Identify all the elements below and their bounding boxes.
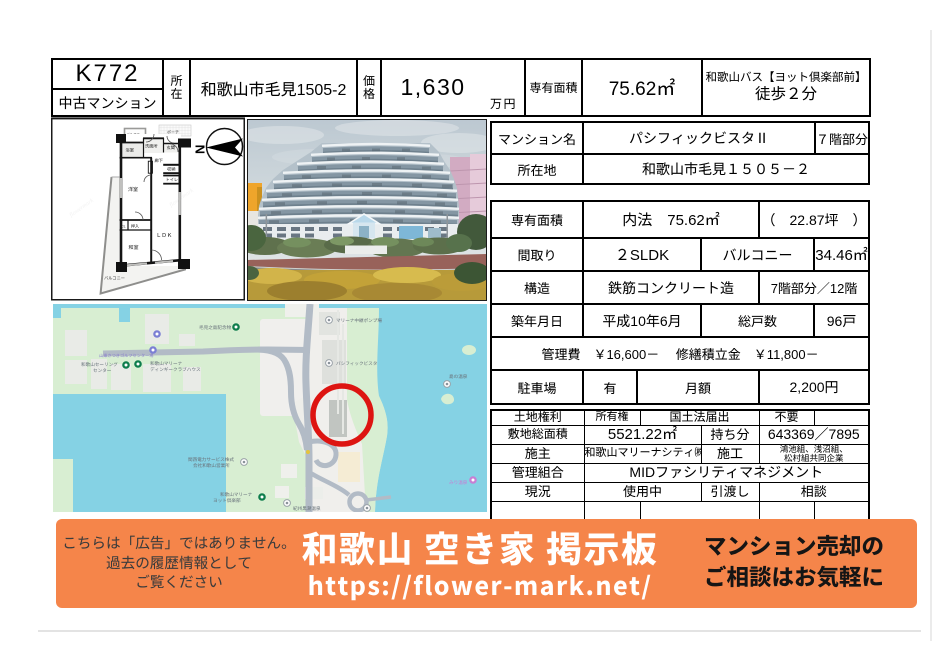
svg-text:マリーナ中継ポンプ場: マリーナ中継ポンプ場 — [336, 318, 382, 323]
svg-text:CL: CL — [121, 225, 126, 229]
svg-text:関西電力サービス株式: 関西電力サービス株式 — [188, 457, 234, 462]
svg-text:毛見之島記念物: 毛見之島記念物 — [199, 325, 232, 330]
svg-text:会社和歌山営業所: 会社和歌山営業所 — [193, 463, 230, 468]
svg-text:バルコニー: バルコニー — [104, 276, 125, 281]
svg-text:収納: 収納 — [167, 167, 175, 172]
svg-text:押入: 押入 — [131, 224, 139, 229]
svg-text:N: N — [193, 145, 208, 154]
svg-text:ＬＤＫ: ＬＤＫ — [156, 233, 172, 239]
svg-text:ヨット倶楽部: ヨット倶楽部 — [213, 498, 241, 503]
svg-text:和室: 和室 — [129, 244, 139, 251]
svg-text:和歌山マリーナ: 和歌山マリーナ — [150, 361, 183, 366]
svg-text:浴室: 浴室 — [126, 148, 134, 153]
svg-text:山東さつきゴルフセンター場: 山東さつきゴルフセンター場 — [99, 353, 154, 358]
svg-text:ポーチ: ポーチ — [167, 130, 179, 135]
svg-text:洋室: 洋室 — [128, 186, 138, 193]
svg-text:玄関: 玄関 — [167, 145, 175, 150]
svg-text:島の温泉: 島の温泉 — [449, 374, 468, 379]
svg-text:洗面所: 洗面所 — [145, 144, 158, 149]
svg-text:パシフィックビスタ: パシフィックビスタ — [336, 361, 378, 366]
svg-text:和歌山セーリング: 和歌山セーリング — [81, 362, 118, 367]
svg-text:みり温泉: みり温泉 — [449, 480, 468, 485]
svg-text:トイレ: トイレ — [166, 177, 179, 182]
svg-text:センター: センター — [93, 368, 112, 373]
svg-text:廊下: 廊下 — [155, 158, 163, 163]
svg-text:紀州黒潮温泉: 紀州黒潮温泉 — [293, 506, 321, 511]
svg-text:ディンギークラブハウス: ディンギークラブハウス — [150, 367, 201, 372]
svg-text:和歌山マリーナ: 和歌山マリーナ — [220, 492, 253, 497]
